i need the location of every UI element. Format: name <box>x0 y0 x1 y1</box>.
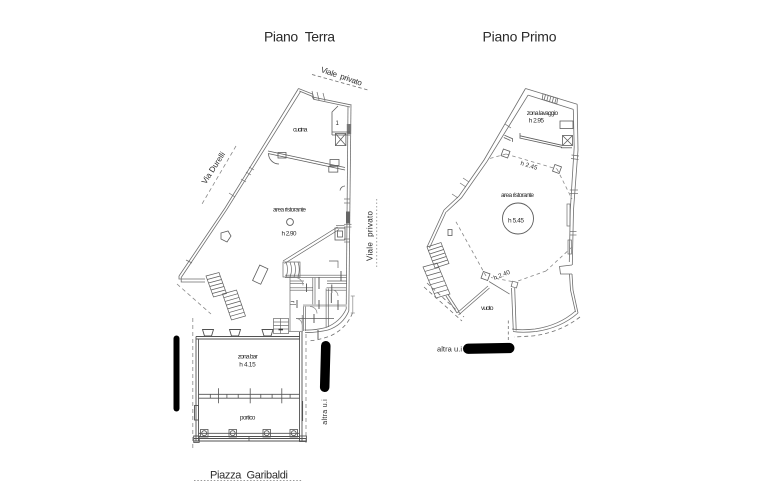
svg-text:h 5.45: h 5.45 <box>508 217 524 224</box>
svg-text:area ristorante: area ristorante <box>501 192 534 199</box>
svg-text:altra u.i: altra u.i <box>322 399 329 425</box>
svg-text:zona bar: zona bar <box>238 353 259 360</box>
svg-text:h 2.45: h 2.45 <box>520 160 539 172</box>
svg-text:Piano Primo: Piano Primo <box>483 29 557 45</box>
svg-text:zona lavaggio: zona lavaggio <box>527 110 559 117</box>
svg-text:cucina: cucina <box>293 127 308 134</box>
svg-text:1: 1 <box>336 121 340 127</box>
svg-text:Via Durelli: Via Durelli <box>200 150 227 186</box>
svg-text:portico: portico <box>240 415 256 422</box>
svg-text:altra u.i: altra u.i <box>437 345 462 354</box>
svg-text:vuoto: vuoto <box>481 305 494 312</box>
svg-text:Piano Terra: Piano Terra <box>264 29 335 45</box>
svg-text:h 2.90: h 2.90 <box>282 231 297 238</box>
svg-text:Viale privato: Viale privato <box>320 65 364 88</box>
svg-text:Piazza Garibaldi: Piazza Garibaldi <box>210 470 288 482</box>
svg-text:Viale privato: Viale privato <box>366 210 375 261</box>
svg-text:area ristorante: area ristorante <box>273 207 306 214</box>
svg-text:h 4.15: h 4.15 <box>239 362 256 369</box>
svg-text:h 2.95: h 2.95 <box>529 118 545 125</box>
